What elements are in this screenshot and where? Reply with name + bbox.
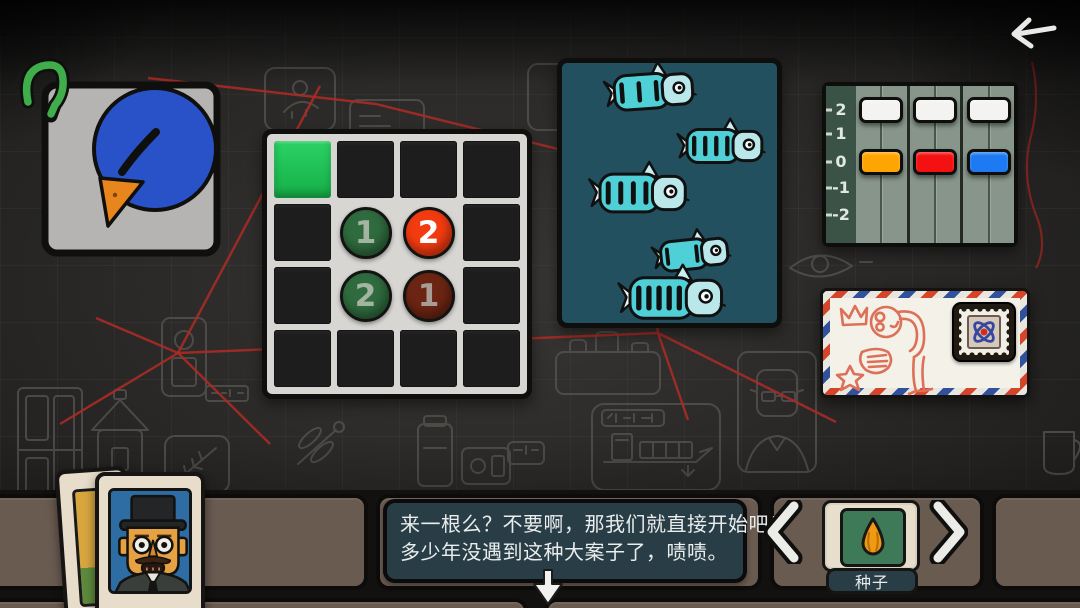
slider-track-3 xyxy=(960,86,1014,243)
scale-label--1: -1 xyxy=(826,180,856,196)
robot-fish-3[interactable] xyxy=(589,162,688,212)
fish-stripe xyxy=(618,181,623,204)
bowing-figure-doodle xyxy=(834,300,958,396)
detective-portrait xyxy=(108,488,192,594)
fish-stripe xyxy=(725,136,729,157)
robot-fish-4[interactable] xyxy=(650,226,731,273)
robot-fish-2[interactable] xyxy=(678,119,765,163)
airmail-envelope[interactable] xyxy=(820,288,1030,398)
grid-token-1[interactable]: 1 xyxy=(340,207,392,259)
fish-stripe xyxy=(631,181,636,204)
red-string xyxy=(178,353,270,444)
fish-stripe xyxy=(703,136,707,157)
fish-pupil xyxy=(704,294,708,298)
sketch-bottles xyxy=(556,332,660,394)
grid-cell-r2c3[interactable] xyxy=(463,267,520,324)
fish-stripe xyxy=(636,285,641,310)
next-item-button[interactable] xyxy=(928,500,968,564)
sketch-mug xyxy=(1044,432,1080,474)
grid-puzzle[interactable]: 1221 xyxy=(262,129,532,399)
slider-tracks xyxy=(856,86,1014,243)
grid-token-1[interactable]: 1 xyxy=(403,270,455,322)
scale-label--2: -2 xyxy=(826,207,856,223)
slider-handle[interactable] xyxy=(967,149,1011,175)
grid-cell-r1c3[interactable] xyxy=(463,204,520,261)
fish-tank-panel[interactable] xyxy=(557,58,782,328)
item-label-text: 种子 xyxy=(855,569,889,593)
robot-fish-5[interactable] xyxy=(619,265,725,318)
red-scribble xyxy=(1027,62,1042,268)
slider-handle[interactable] xyxy=(913,97,957,123)
grid-cell-r2c0[interactable] xyxy=(274,267,331,324)
sketch-device xyxy=(462,442,544,484)
fish-stripe xyxy=(606,181,611,204)
grid-cell-r0c2[interactable] xyxy=(400,141,457,198)
sketch-machine xyxy=(162,318,248,401)
fish-svg xyxy=(557,58,782,328)
slider-handle[interactable] xyxy=(967,97,1011,123)
grid-cell-r2c2[interactable]: 1 xyxy=(400,267,457,324)
scale-label-2: 2 xyxy=(826,102,856,118)
slider-panel: 210-1-2 xyxy=(822,82,1018,247)
slider-track-2 xyxy=(907,86,961,243)
dialogue-line-1: 来一根么？不要啊，那我们就直接开始吧！ xyxy=(400,510,730,538)
game-screen: 1221 210-1-2 xyxy=(0,0,1080,608)
fish-stripe xyxy=(646,285,651,310)
grid-cell-r1c0[interactable] xyxy=(274,204,331,261)
scale-label-0: 0 xyxy=(826,154,856,170)
envelope-face xyxy=(830,298,1020,388)
grid-cell-r0c3[interactable] xyxy=(463,141,520,198)
grid-cell-r1c1[interactable]: 1 xyxy=(337,204,394,261)
sketch-eye xyxy=(790,255,872,276)
fish-pupil xyxy=(748,143,752,147)
fish-stripe xyxy=(656,285,661,310)
sketch-dragonfly xyxy=(296,422,344,465)
sketch-jar xyxy=(418,416,452,486)
slider-handle[interactable] xyxy=(913,149,957,175)
fish-mouth xyxy=(727,254,730,256)
scale-label-1: 1 xyxy=(826,126,856,142)
fish-stripe xyxy=(643,181,648,204)
slider-scale: 210-1-2 xyxy=(826,86,856,243)
seed-icon xyxy=(840,508,906,567)
back-button[interactable] xyxy=(1000,8,1064,52)
bottom-panel xyxy=(992,494,1080,590)
grid-token-2[interactable]: 2 xyxy=(340,270,392,322)
slider-track-1 xyxy=(856,86,907,243)
fish-stripe xyxy=(677,285,682,310)
grid-cell-r0c1[interactable] xyxy=(337,141,394,198)
grid-puzzle-cells: 1221 xyxy=(267,134,527,394)
grid-cell-r1c2[interactable]: 2 xyxy=(400,204,457,261)
arrow-left-icon xyxy=(1014,20,1054,46)
robot-fish-1[interactable] xyxy=(603,60,697,112)
red-string xyxy=(96,318,178,353)
prev-item-button[interactable] xyxy=(764,500,804,564)
fish-stripe xyxy=(692,136,696,157)
sketch-portrait xyxy=(738,352,816,472)
grid-cell-r3c3[interactable] xyxy=(463,330,520,387)
slider-handle[interactable] xyxy=(859,97,903,123)
grid-token-2[interactable]: 2 xyxy=(403,207,455,259)
sketch-ship-card xyxy=(592,404,720,490)
inventory-item-seed[interactable] xyxy=(822,500,920,572)
fish-stripe xyxy=(714,136,718,157)
grid-cell-r2c1[interactable]: 2 xyxy=(337,267,394,324)
advance-dialogue-arrow-icon[interactable] xyxy=(530,568,566,608)
slider-handle[interactable] xyxy=(859,149,903,175)
bottom-panel-row2 xyxy=(544,598,1080,608)
beak-nostril xyxy=(113,193,117,197)
grid-cell-r0c0[interactable] xyxy=(274,141,331,198)
fish-stripe xyxy=(667,285,672,310)
atom-stamp-icon xyxy=(952,302,1016,362)
grid-cell-r3c2[interactable] xyxy=(400,330,457,387)
grid-cell-r3c1[interactable] xyxy=(337,330,394,387)
fish-pupil xyxy=(669,189,673,193)
dialogue-line-2: 多少年没遇到这种大案子了，啧啧。 xyxy=(400,538,730,566)
bird-photo-card[interactable] xyxy=(18,50,228,265)
detective-portrait-card[interactable] xyxy=(95,472,205,608)
item-label: 种子 xyxy=(826,568,918,594)
grid-cell-r3c0[interactable] xyxy=(274,330,331,387)
